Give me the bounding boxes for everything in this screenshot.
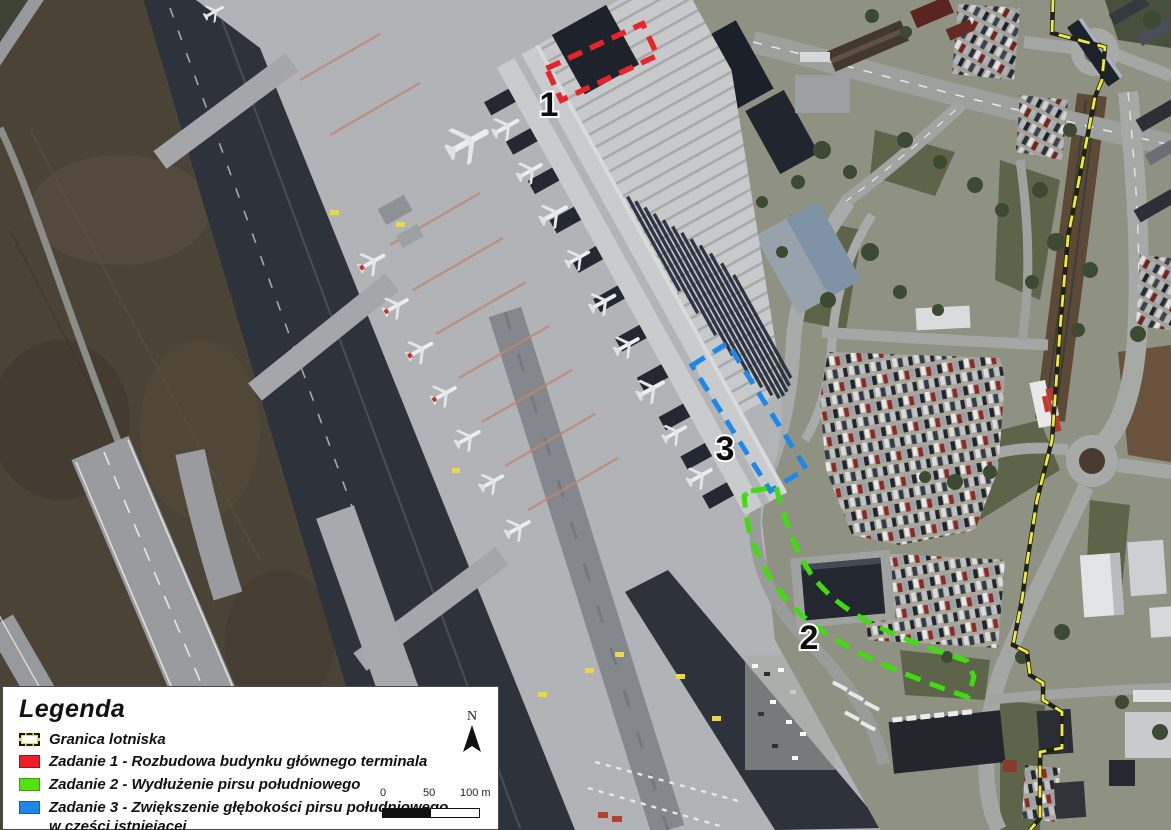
legend-item-label-line2: w części istniejącej: [49, 818, 187, 830]
boundary-swatch: [19, 733, 40, 746]
scale-bar: [382, 808, 480, 818]
legend-item-label: Zadanie 2 - Wydłużenie pirsu południoweg…: [49, 776, 360, 793]
main-parking-lot: [820, 352, 1005, 545]
legend-item-label: Granica lotniska: [49, 731, 166, 748]
legend-item-zadanie-1: Zadanie 1 - Rozbudowa budynku głównego t…: [19, 753, 427, 770]
map-label-zadanie-2: 2: [800, 619, 819, 657]
zadanie-3-swatch: [19, 801, 40, 814]
airport-map-figure: 1 2 3 Legenda Granica lotniska Zadanie 1…: [0, 0, 1171, 830]
north-parking-lot: [952, 4, 1020, 80]
legend-item-label: Zadanie 1 - Rozbudowa budynku głównego t…: [49, 753, 427, 770]
roundabout-south: [1066, 435, 1118, 487]
north-arrow-icon: [462, 725, 482, 753]
zadanie-1-swatch: [19, 755, 40, 768]
legend-item-zadanie-2: Zadanie 2 - Wydłużenie pirsu południoweg…: [19, 776, 360, 793]
scale-label-50: 50: [423, 787, 435, 799]
map-label-zadanie-3: 3: [716, 430, 735, 468]
legend-item-granica: Granica lotniska: [19, 731, 166, 748]
legend-title: Legenda: [19, 695, 125, 724]
map-label-zadanie-1: 1: [540, 86, 559, 124]
legend-panel: Legenda Granica lotniska Zadanie 1 - Roz…: [2, 686, 499, 830]
zadanie-2-swatch: [19, 778, 40, 791]
red-roof-building: [1003, 760, 1017, 772]
scale-label-0: 0: [380, 787, 386, 799]
scale-bar-fill: [383, 809, 431, 817]
north-label: N: [461, 709, 483, 725]
scale-label-100m: 100 m: [460, 787, 491, 799]
